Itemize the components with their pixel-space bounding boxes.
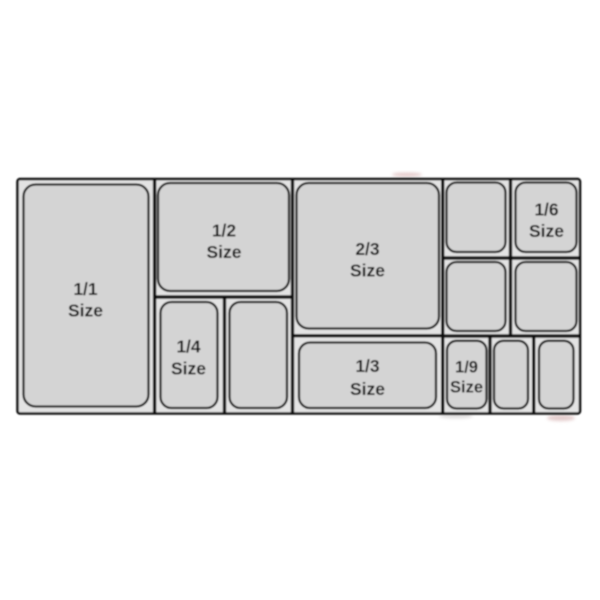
svg-text:Size: Size	[171, 359, 206, 379]
svg-text:Size: Size	[206, 242, 241, 262]
svg-text:1/2: 1/2	[212, 221, 237, 241]
svg-text:1/3: 1/3	[355, 356, 380, 376]
svg-text:2/3: 2/3	[355, 239, 380, 259]
svg-text:Size: Size	[350, 379, 385, 399]
svg-text:Size: Size	[450, 379, 483, 397]
svg-text:1/4: 1/4	[176, 337, 201, 357]
svg-text:1/9: 1/9	[455, 359, 478, 377]
svg-text:Size: Size	[350, 261, 385, 281]
svg-text:Size: Size	[529, 221, 564, 241]
svg-text:1/1: 1/1	[73, 279, 98, 299]
svg-text:Size: Size	[68, 301, 103, 321]
svg-text:1/6: 1/6	[534, 200, 559, 220]
